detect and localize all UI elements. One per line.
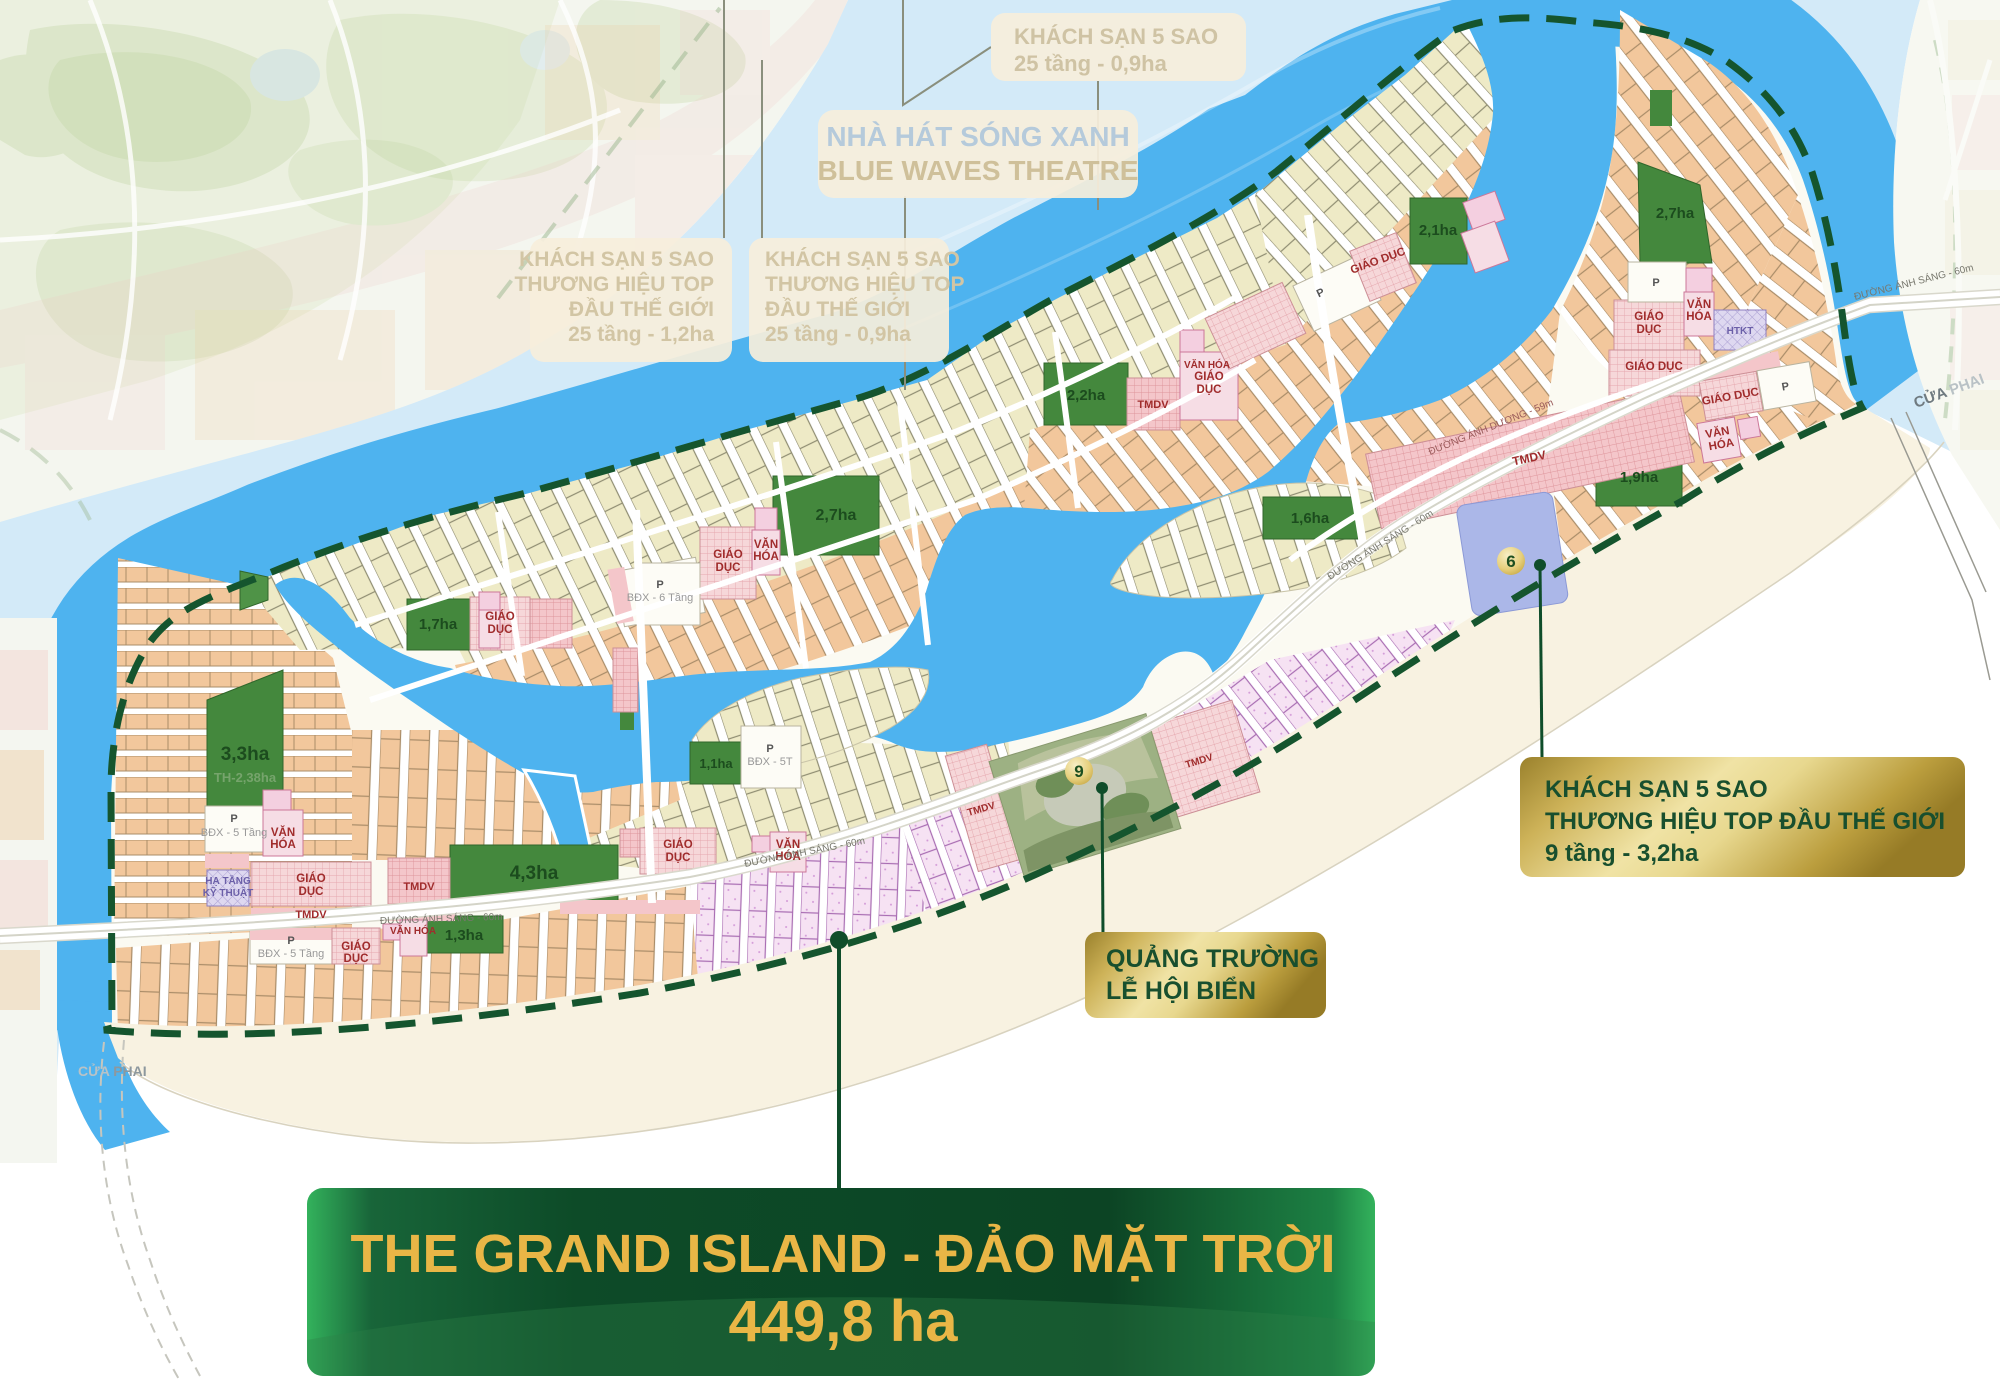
svg-text:THƯƠNG HIỆU TOP ĐẦU THẾ GIỚI: THƯƠNG HIỆU TOP ĐẦU THẾ GIỚI	[1545, 807, 1945, 835]
svg-text:25 tầng - 1,2ha: 25 tầng - 1,2ha	[568, 323, 714, 346]
svg-text:3,3ha: 3,3ha	[221, 744, 270, 765]
svg-text:KHÁCH SẠN 5 SAO: KHÁCH SẠN 5 SAO	[1545, 775, 1768, 803]
svg-text:GIÁO: GIÁO	[296, 872, 325, 885]
svg-text:449,8 ha: 449,8 ha	[729, 1289, 959, 1354]
svg-text:HÓA: HÓA	[753, 550, 779, 563]
svg-text:1,1ha: 1,1ha	[699, 756, 733, 771]
svg-text:BLUE WAVES THEATRE: BLUE WAVES THEATRE	[818, 155, 1139, 186]
svg-text:1,7ha: 1,7ha	[419, 616, 458, 633]
svg-text:TH-2,38ha: TH-2,38ha	[214, 770, 277, 785]
svg-text:BĐX - 6 Tầng: BĐX - 6 Tầng	[627, 592, 693, 604]
svg-text:P: P	[766, 743, 773, 755]
svg-text:DỤC: DỤC	[344, 953, 369, 965]
svg-text:DỤC: DỤC	[299, 886, 324, 898]
svg-text:THE GRAND ISLAND - ĐẢO MẶT TRỜ: THE GRAND ISLAND - ĐẢO MẶT TRỜI	[351, 1224, 1336, 1284]
svg-text:VĂN HÓA: VĂN HÓA	[1184, 358, 1230, 371]
svg-text:DỤC: DỤC	[666, 852, 691, 864]
svg-text:DỤC: DỤC	[488, 624, 513, 636]
svg-text:2,2ha: 2,2ha	[1067, 387, 1106, 404]
svg-text:ĐẦU THẾ GIỚI: ĐẦU THẾ GIỚI	[765, 297, 910, 321]
svg-text:P: P	[230, 813, 237, 825]
svg-text:HÓA: HÓA	[1686, 310, 1712, 323]
svg-text:KỸ THUẬT: KỸ THUẬT	[203, 886, 254, 899]
svg-text:BĐX - 5 Tầng: BĐX - 5 Tầng	[201, 827, 267, 839]
svg-text:THƯƠNG HIỆU TOP: THƯƠNG HIỆU TOP	[515, 272, 714, 296]
svg-text:GIÁO: GIÁO	[1634, 310, 1663, 323]
svg-text:TMDV: TMDV	[1137, 399, 1169, 411]
svg-text:9 tầng - 3,2ha: 9 tầng - 3,2ha	[1545, 840, 1699, 867]
svg-text:2,1ha: 2,1ha	[1419, 222, 1458, 239]
svg-text:6: 6	[1506, 552, 1515, 571]
svg-text:1,3ha: 1,3ha	[445, 927, 484, 944]
svg-text:1,9ha: 1,9ha	[1620, 469, 1659, 486]
svg-text:1,6ha: 1,6ha	[1291, 510, 1330, 527]
svg-text:HÓA: HÓA	[270, 838, 296, 851]
svg-text:GIÁO: GIÁO	[341, 940, 370, 953]
svg-text:QUẢNG TRƯỜNG: QUẢNG TRƯỜNG	[1106, 943, 1319, 973]
svg-text:9: 9	[1074, 762, 1083, 781]
svg-text:P: P	[656, 579, 663, 591]
svg-text:2,7ha: 2,7ha	[816, 507, 857, 524]
svg-text:LỄ HỘI BIỂN: LỄ HỘI BIỂN	[1106, 975, 1256, 1005]
svg-text:4,3ha: 4,3ha	[510, 863, 559, 884]
svg-text:KHÁCH SẠN 5 SAO: KHÁCH SẠN 5 SAO	[765, 248, 960, 271]
svg-text:DỤC: DỤC	[716, 562, 741, 574]
svg-text:GIÁO DỤC: GIÁO DỤC	[1625, 360, 1683, 373]
svg-text:GIÁO: GIÁO	[485, 610, 514, 623]
svg-text:GIÁO: GIÁO	[663, 838, 692, 851]
svg-text:VĂN: VĂN	[754, 538, 778, 551]
svg-text:DỤC: DỤC	[1637, 324, 1662, 336]
svg-text:NHÀ HÁT SÓNG XANH: NHÀ HÁT SÓNG XANH	[826, 121, 1129, 152]
svg-text:KHÁCH SẠN 5 SAO: KHÁCH SẠN 5 SAO	[1014, 24, 1218, 49]
svg-text:BĐX - 5T: BĐX - 5T	[747, 756, 793, 768]
svg-text:HTKT: HTKT	[1727, 326, 1754, 337]
svg-text:BĐX - 5 Tầng: BĐX - 5 Tầng	[258, 948, 324, 960]
svg-text:ĐẦU THẾ GIỚI: ĐẦU THẾ GIỚI	[569, 297, 714, 321]
svg-text:THƯƠNG HIỆU TOP: THƯƠNG HIỆU TOP	[765, 272, 964, 296]
svg-text:HẠ TẦNG: HẠ TẦNG	[205, 874, 251, 887]
svg-text:25 tầng - 0,9ha: 25 tầng - 0,9ha	[765, 323, 911, 346]
svg-text:DỤC: DỤC	[1197, 384, 1222, 396]
svg-text:25 tầng - 0,9ha: 25 tầng - 0,9ha	[1014, 51, 1168, 76]
svg-text:VĂN: VĂN	[271, 826, 295, 839]
svg-text:VĂN: VĂN	[1687, 298, 1711, 311]
svg-text:P: P	[1652, 277, 1659, 289]
svg-text:P: P	[287, 935, 294, 947]
svg-text:GIÁO: GIÁO	[1194, 370, 1223, 383]
svg-text:2,7ha: 2,7ha	[1656, 205, 1695, 222]
svg-text:GIÁO: GIÁO	[713, 548, 742, 561]
svg-text:KHÁCH SẠN 5 SAO: KHÁCH SẠN 5 SAO	[519, 248, 714, 271]
svg-text:TMDV: TMDV	[403, 881, 435, 893]
svg-text:TMDV: TMDV	[295, 909, 327, 921]
svg-text:CỬA PHAI: CỬA PHAI	[78, 1062, 147, 1079]
